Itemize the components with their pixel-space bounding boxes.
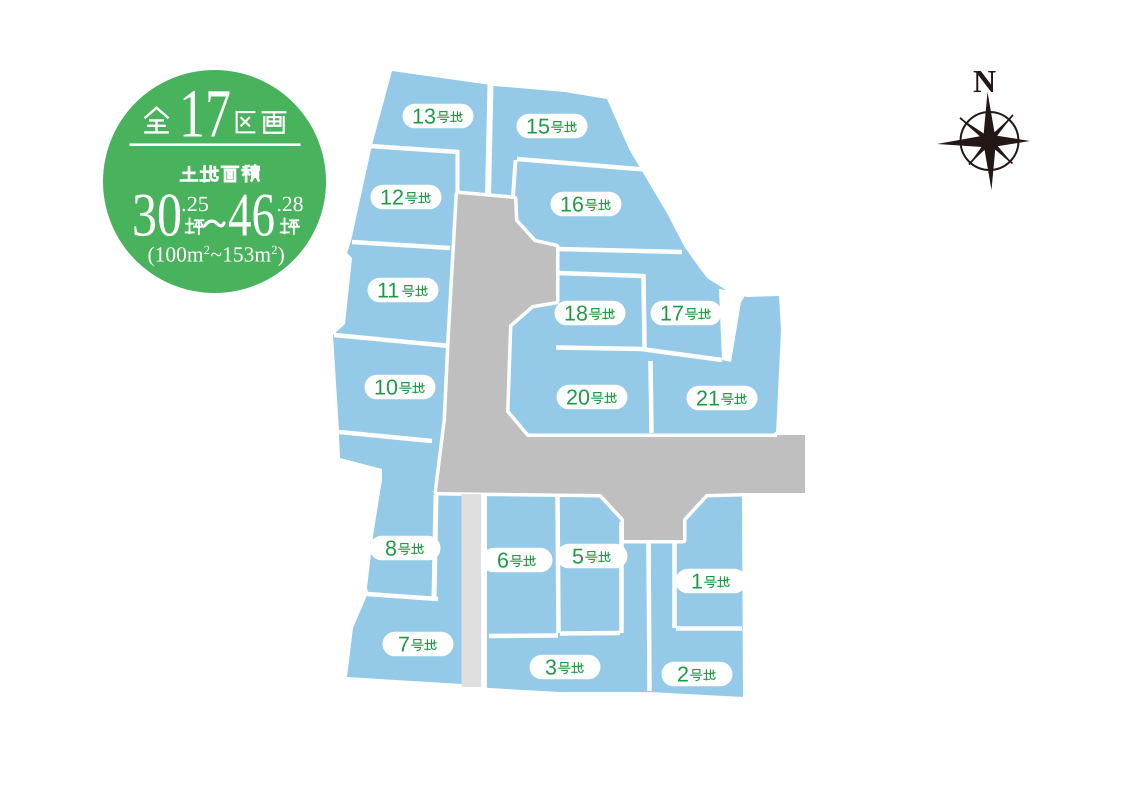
svg-text:2: 2 [204, 243, 210, 257]
svg-text:10: 10 [374, 376, 398, 400]
svg-text:17: 17 [660, 302, 684, 326]
svg-text:): ) [278, 243, 285, 267]
svg-text:18: 18 [564, 302, 588, 326]
svg-text:(100m: (100m [148, 243, 204, 267]
svg-text:N: N [973, 63, 996, 99]
svg-text:11: 11 [377, 279, 399, 303]
svg-text:12: 12 [380, 186, 404, 210]
svg-text:13: 13 [412, 105, 436, 129]
svg-text:3: 3 [545, 656, 557, 680]
svg-text:17: 17 [179, 76, 231, 152]
svg-text:~153m: ~153m [211, 243, 272, 267]
svg-text:8: 8 [385, 537, 397, 561]
svg-text:6: 6 [497, 549, 509, 573]
svg-text:46: 46 [228, 182, 275, 250]
svg-text:21: 21 [696, 387, 720, 411]
svg-text:.28: .28 [277, 192, 304, 216]
svg-text:15: 15 [526, 115, 550, 139]
svg-text:16: 16 [560, 193, 584, 217]
svg-text:.25: .25 [181, 192, 209, 216]
svg-text:2: 2 [677, 663, 689, 687]
svg-text:20: 20 [566, 386, 590, 410]
svg-text:5: 5 [572, 545, 584, 569]
svg-text:7: 7 [398, 633, 410, 657]
svg-text:1: 1 [691, 570, 703, 594]
svg-text:30: 30 [132, 182, 182, 250]
